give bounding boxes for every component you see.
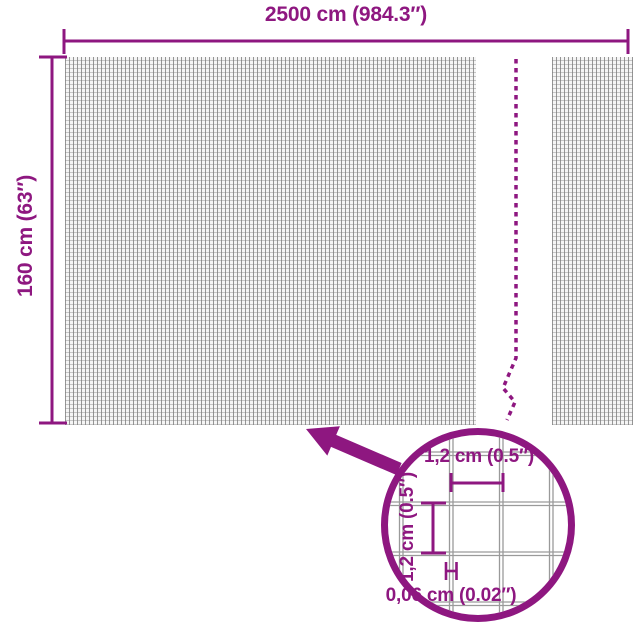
height-dimension-label: 160 cm (63″) — [14, 175, 38, 297]
break-line-icon — [503, 59, 516, 420]
left-dimension-line — [39, 57, 67, 423]
width-dimension-label: 2500 cm (984.3″) — [265, 3, 427, 27]
magnifier-arrow-icon — [306, 426, 402, 475]
product-dimension-diagram: 2500 cm (984.3″) 160 cm (63″) 1,2 cm (0.… — [0, 0, 640, 640]
diagram-overlay — [0, 0, 640, 640]
wire-thickness-label: 0,06 cm (0.02″) — [386, 585, 517, 607]
top-dimension-line — [64, 29, 628, 54]
cell-width-label: 1,2 cm (0.5″) — [424, 446, 534, 468]
cell-height-label: 1,2 cm (0.5″) — [397, 472, 419, 582]
